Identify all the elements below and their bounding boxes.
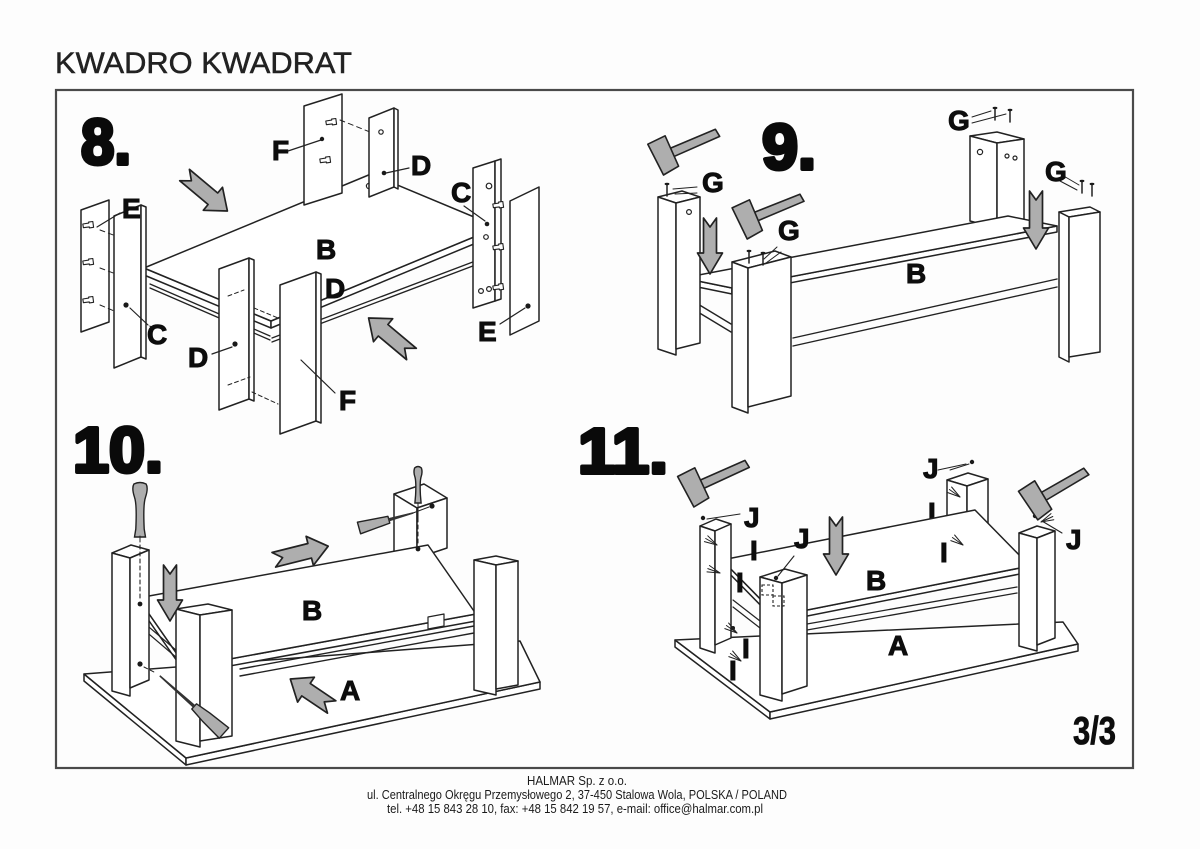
svg-text:B: B — [906, 258, 926, 289]
svg-text:J: J — [923, 453, 939, 484]
svg-text:E: E — [478, 316, 497, 347]
svg-text:I: I — [736, 567, 744, 598]
svg-text:G: G — [702, 167, 724, 198]
svg-text:B: B — [316, 234, 336, 265]
svg-text:I: I — [750, 535, 758, 566]
svg-text:10.: 10. — [73, 414, 163, 486]
svg-text:B: B — [302, 595, 322, 626]
svg-text:11.: 11. — [578, 415, 668, 487]
svg-text:C: C — [147, 319, 167, 350]
svg-text:D: D — [325, 273, 345, 304]
svg-text:A: A — [340, 675, 360, 706]
svg-text:F: F — [339, 385, 356, 416]
svg-text:9.: 9. — [762, 111, 816, 183]
svg-text:J: J — [744, 502, 760, 533]
svg-text:I: I — [742, 633, 750, 664]
svg-text:G: G — [778, 215, 800, 246]
svg-text:D: D — [411, 150, 431, 181]
svg-text:G: G — [1045, 156, 1067, 187]
svg-text:E: E — [122, 193, 141, 224]
svg-text:tel. +48 15 843 28 10, fax: +4: tel. +48 15 843 28 10, fax: +48 15 842 1… — [387, 801, 763, 816]
svg-text:3/3: 3/3 — [1073, 710, 1116, 753]
svg-text:ul. Centralnego Okręgu Przemys: ul. Centralnego Okręgu Przemysłowego 2, … — [367, 787, 787, 802]
svg-text:A: A — [888, 630, 908, 661]
svg-text:B: B — [866, 565, 886, 596]
svg-text:HALMAR Sp. z o.o.: HALMAR Sp. z o.o. — [527, 773, 627, 788]
svg-text:KWADRO KWADRAT: KWADRO KWADRAT — [55, 47, 352, 80]
svg-text:F: F — [272, 135, 289, 166]
svg-text:G: G — [948, 105, 970, 136]
svg-text:C: C — [451, 177, 471, 208]
svg-text:J: J — [794, 523, 810, 554]
svg-text:J: J — [1066, 524, 1082, 555]
svg-text:I: I — [729, 655, 737, 686]
svg-text:I: I — [940, 537, 948, 568]
svg-text:D: D — [188, 342, 208, 373]
svg-text:8.: 8. — [81, 106, 131, 178]
